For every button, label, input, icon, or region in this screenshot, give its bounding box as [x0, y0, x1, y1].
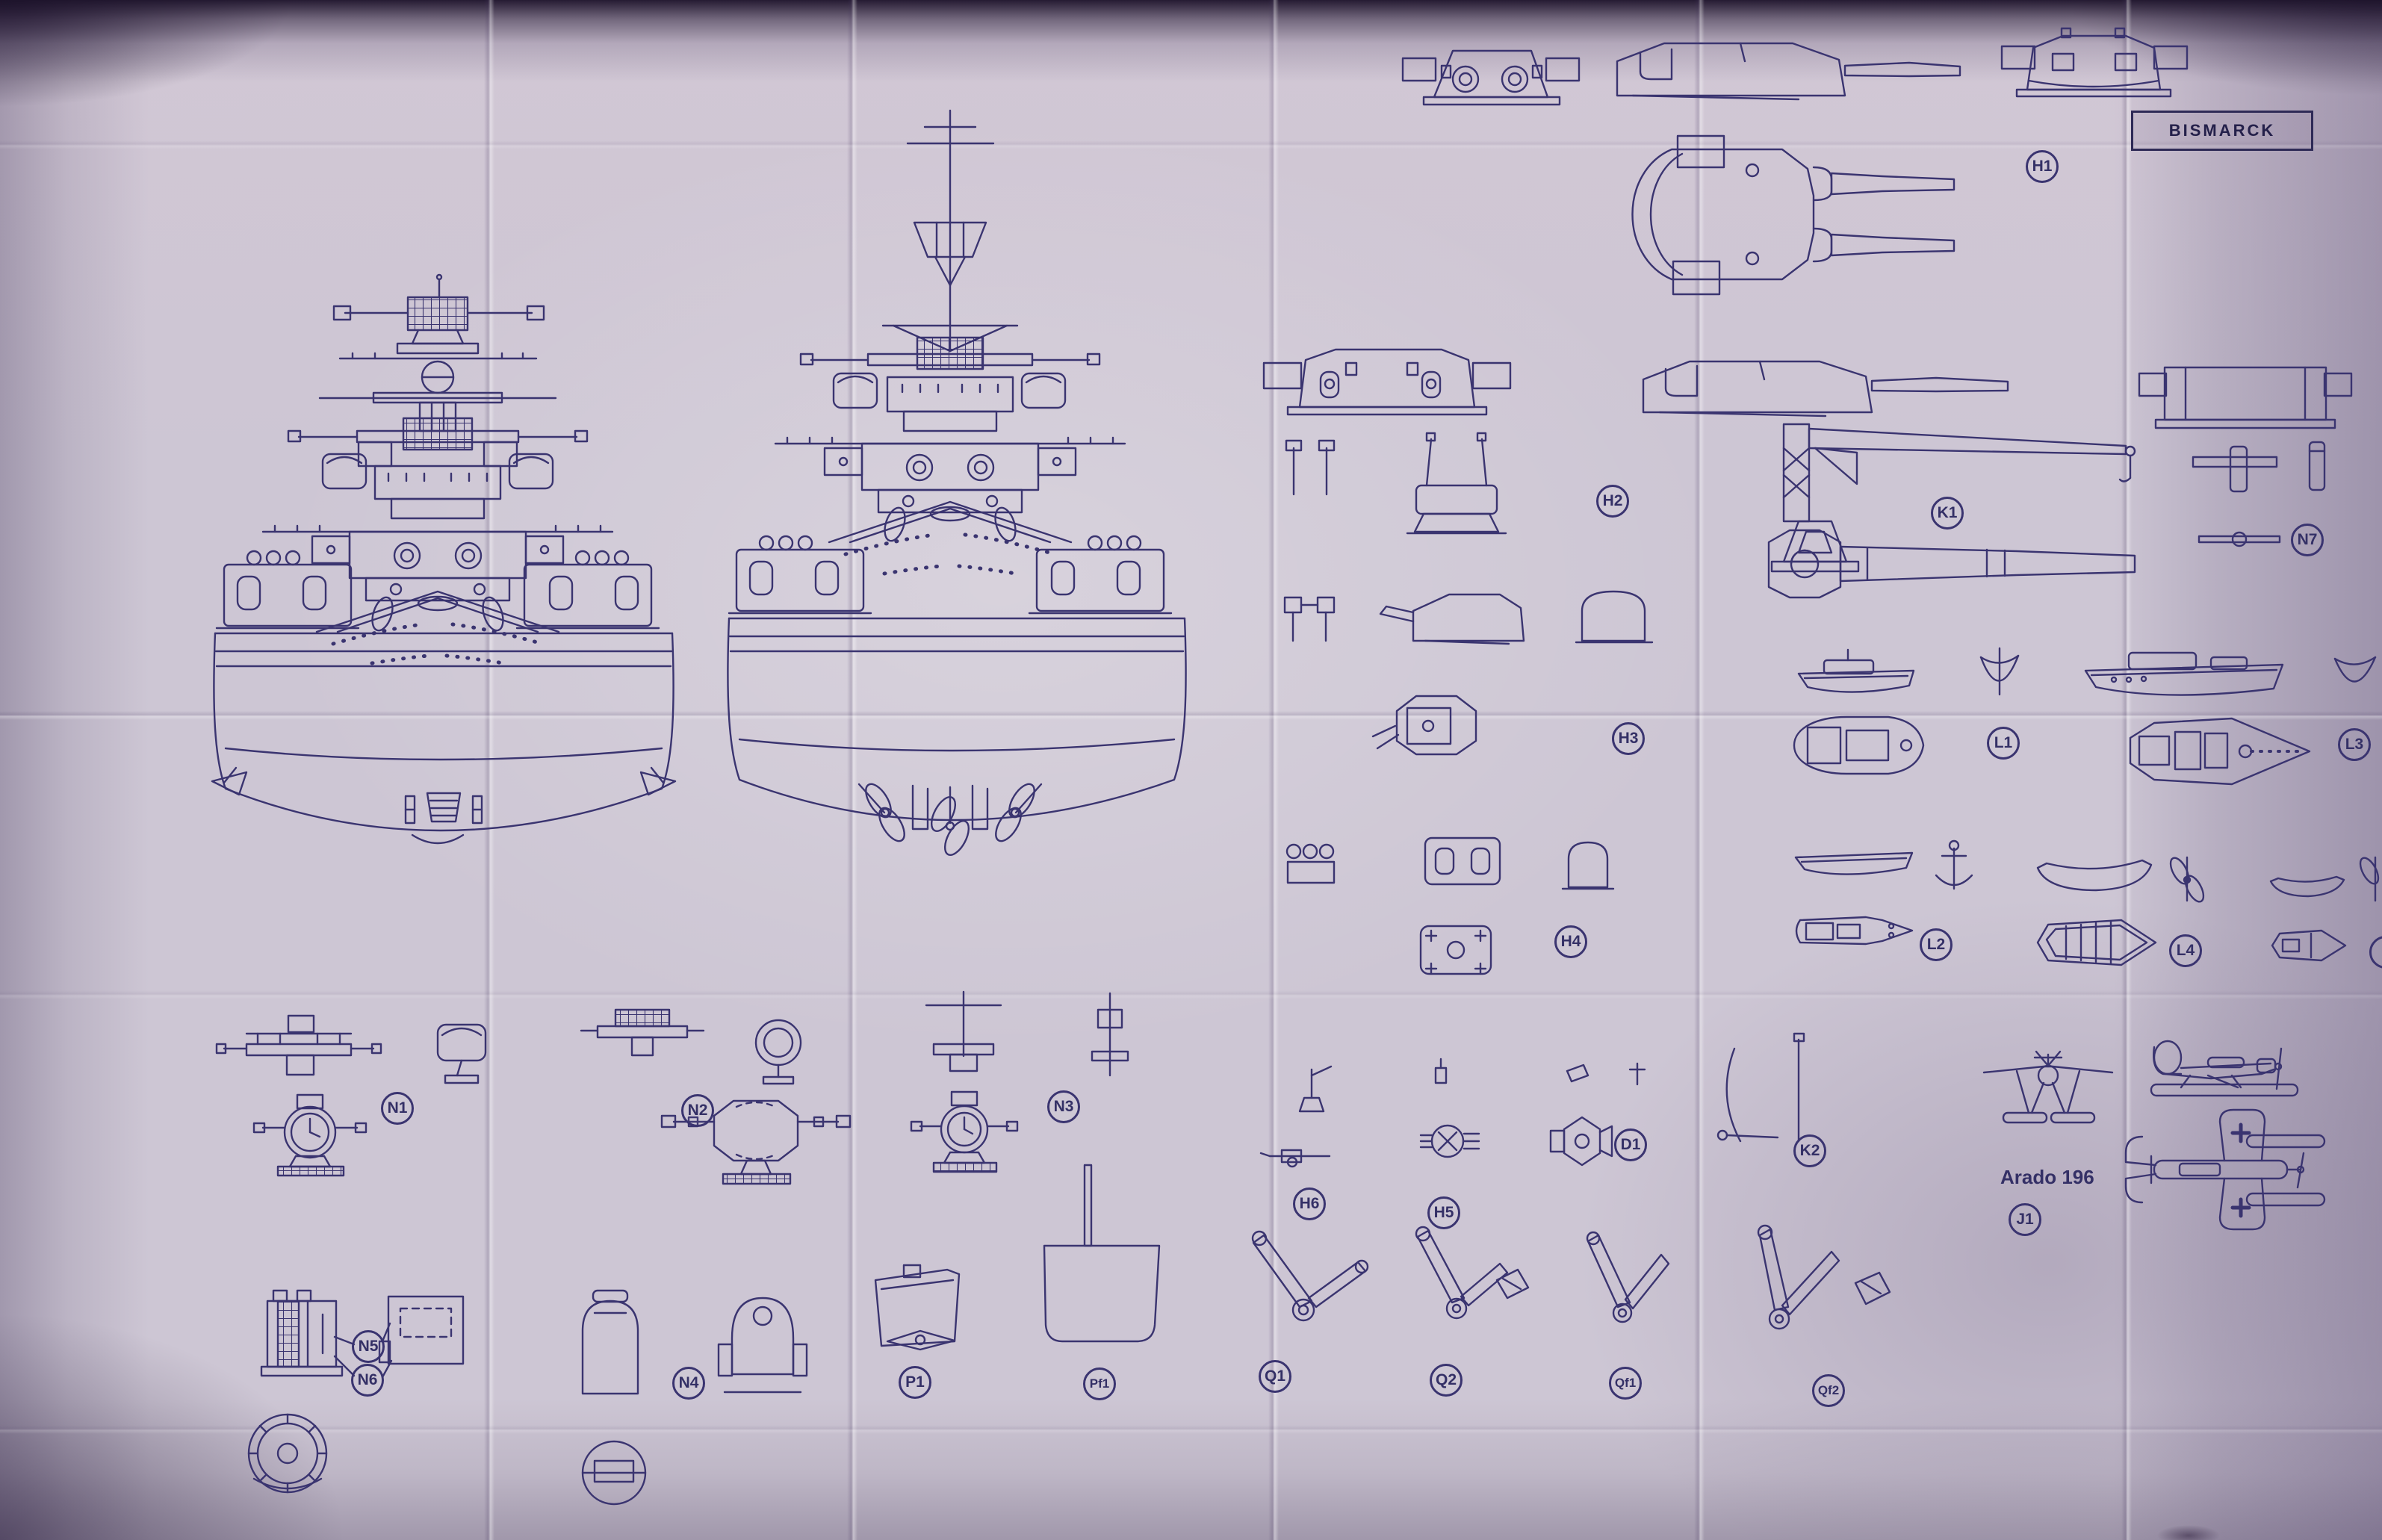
part-label-Q2: Q2 — [1430, 1364, 1463, 1397]
part-label-L2: L2 — [1920, 928, 1953, 961]
part-label-L: L — [2369, 936, 2382, 969]
part-label-N5: N5 — [352, 1330, 385, 1363]
part-label-H2: H2 — [1596, 485, 1629, 518]
part-label-K1: K1 — [1931, 497, 1964, 530]
part-label-H1: H1 — [2026, 150, 2059, 183]
part-label-H6: H6 — [1293, 1187, 1326, 1220]
part-label-D1: D1 — [1614, 1128, 1647, 1161]
part-label-L4: L4 — [2169, 934, 2202, 967]
part-label-Q1: Q1 — [1259, 1360, 1291, 1393]
part-label-N7: N7 — [2291, 524, 2324, 556]
part-label-N1: N1 — [381, 1092, 414, 1125]
part-label-L3: L3 — [2338, 728, 2371, 761]
part-label-N3: N3 — [1047, 1090, 1080, 1123]
part-label-N4: N4 — [672, 1367, 705, 1400]
part-label-H5: H5 — [1427, 1196, 1460, 1229]
part-label-K2: K2 — [1793, 1134, 1826, 1167]
part-label-H3: H3 — [1612, 722, 1645, 755]
part-label-N2: N2 — [681, 1094, 714, 1127]
part-label-H4: H4 — [1554, 925, 1587, 958]
part-label-N6: N6 — [351, 1364, 384, 1397]
part-label-Qf1: Qf1 — [1609, 1367, 1642, 1400]
part-label-Pf1: Pf1 — [1083, 1367, 1116, 1400]
part-label-J1: J1 — [2009, 1203, 2041, 1236]
part-label-Qf2: Qf2 — [1812, 1374, 1845, 1407]
part-label-P1: P1 — [899, 1366, 931, 1399]
part-labels-layer: H1H2K1N7H3L1L3H4L2L4LN1N2N3D1K2H6H5J1N5N… — [0, 0, 2382, 1540]
part-label-L1: L1 — [1987, 727, 2020, 760]
blueprint-sheet: BISMARCK Arado 196 H1H2K1N7H3L1L3H4L2L4L… — [0, 0, 2382, 1540]
